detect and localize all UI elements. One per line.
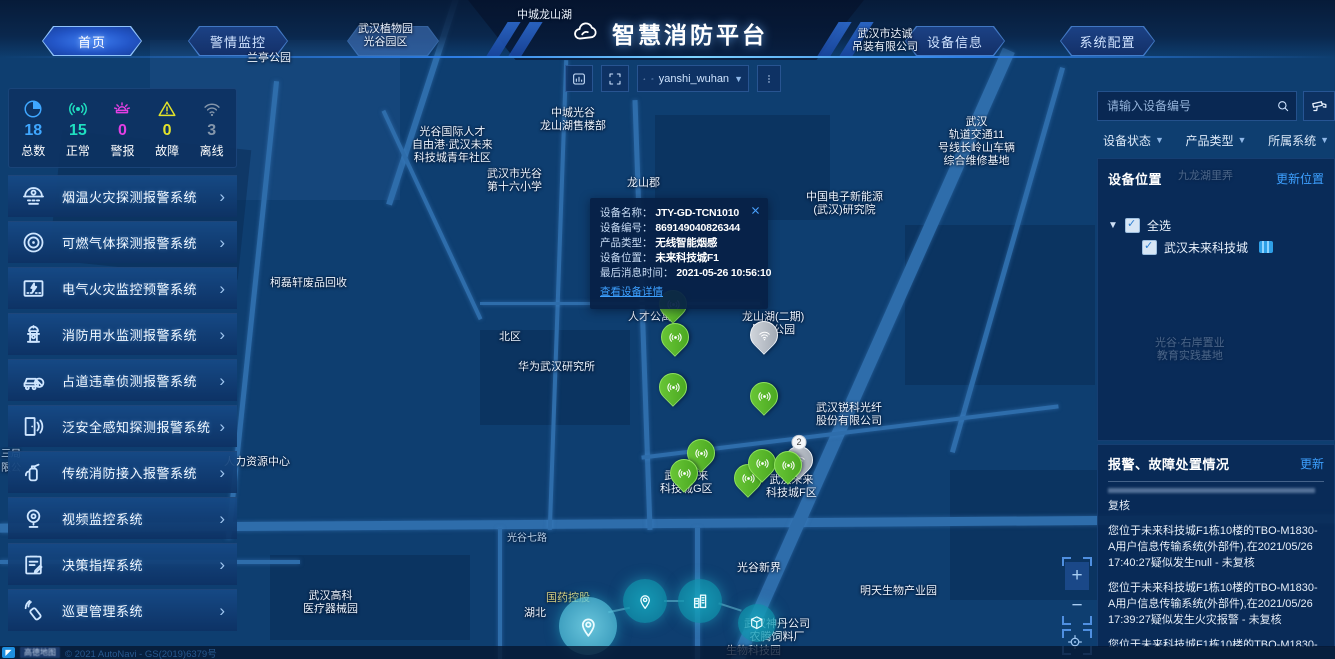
chevron-right-icon: › — [219, 602, 225, 619]
bar-chart-icon — [571, 71, 587, 87]
sidebar-menu-item[interactable]: 视频监控系统 › — [8, 497, 237, 539]
popup-field-value: 无线智能烟感 — [655, 237, 717, 249]
chevron-right-icon: › — [219, 510, 225, 527]
filter-sliders-icon — [651, 71, 654, 87]
building-badge-icon — [1259, 241, 1273, 253]
sidebar-menu-item[interactable]: 烟温火灾探测报警系统 › — [8, 175, 237, 217]
menu-item-label: 占道违章侦测报警系统 — [62, 371, 215, 390]
zoom-in-button[interactable]: + — [1065, 562, 1089, 590]
popup-field-label: 设备编号： — [600, 222, 653, 234]
menu-item-icon — [20, 413, 47, 440]
pin-glyph-icon — [781, 458, 796, 473]
smart-fire-platform: 中城龙山湖武汉植物园 光谷园区武汉市达诚 吊装有限公司兰亭公园中城光谷 龙山湖售… — [0, 0, 1335, 659]
stat-icon — [201, 98, 223, 120]
menu-item-icon — [20, 459, 47, 486]
chevron-right-icon: › — [219, 418, 225, 435]
sidebar-menu-item[interactable]: 可燃气体探测报警系统 › — [8, 221, 237, 263]
sidebar-menu-item[interactable]: 传统消防接入报警系统 › — [8, 451, 237, 493]
update-location-link[interactable]: 更新位置 — [1276, 170, 1324, 187]
location-panel-title: 设备位置 — [1108, 169, 1162, 188]
pin-glyph-icon — [755, 456, 770, 471]
menu-item-icon — [20, 505, 47, 532]
chevron-right-icon: › — [219, 234, 225, 251]
stat-item: 0 警报 — [100, 98, 145, 159]
stat-icon — [67, 98, 89, 120]
header-streaks-left — [497, 22, 532, 56]
map-label: 中国电子新能源 (武汉)研究院 — [806, 191, 883, 217]
popup-field-value: 2021-05-26 10:56:10 — [676, 267, 771, 279]
stat-item: 18 总数 — [11, 98, 56, 159]
popup-field-label: 设备位置： — [600, 252, 653, 264]
tree-expand-icon[interactable]: ▼ — [1108, 220, 1118, 231]
stat-value: 0 — [118, 122, 127, 140]
device-location-panel: 设备位置 更新位置 ▼ 全选 武汉未来科技城 — [1097, 158, 1335, 441]
poi-circle-marker[interactable] — [623, 579, 667, 623]
select-all-label: 全选 — [1147, 217, 1171, 234]
map-label: 武汉市光谷 第十六小学 — [487, 168, 542, 194]
circle-glyph-icon — [748, 614, 765, 631]
cctv-camera-icon — [1310, 97, 1329, 116]
select-all-checkbox[interactable] — [1125, 218, 1140, 233]
user-menu[interactable]: yanshi_wuhan ▼ — [637, 65, 749, 92]
circle-glyph-icon — [635, 591, 655, 611]
bell-icon — [643, 71, 646, 87]
alert-message[interactable]: 复核 — [1108, 488, 1324, 514]
map-label: 明天生物产业园 — [860, 585, 937, 598]
filter-system[interactable]: 所属系统▼ — [1268, 132, 1329, 149]
amap-badge: 高德地图 — [20, 647, 60, 658]
map-label: 武汉锐科光纤 股份有限公司 — [816, 402, 882, 428]
system-menu: 烟温火灾探测报警系统 › 可燃气体探测报警系统 › 电气火灾监控预警系统 › 消… — [8, 175, 237, 635]
map-label: 兰亭公园 — [247, 52, 291, 65]
popup-field-label: 最后消息时间： — [600, 267, 674, 279]
menu-item-icon — [20, 229, 47, 256]
sidebar-menu-item[interactable]: 消防用水监测报警系统 › — [8, 313, 237, 355]
sidebar-menu-item[interactable]: 电气火灾监控预警系统 › — [8, 267, 237, 309]
chevron-down-icon: ▼ — [1238, 135, 1247, 145]
menu-item-label: 烟温火灾探测报警系统 — [62, 187, 215, 206]
pin-glyph-icon — [677, 466, 692, 481]
menu-item-label: 传统消防接入报警系统 — [62, 463, 215, 482]
location-tree: ▼ 全选 武汉未来科技城 — [1108, 214, 1324, 258]
nav-device-info[interactable]: 设备信息 — [905, 26, 1005, 56]
menu-item-label: 泛安全感知探测报警系统 — [62, 417, 215, 436]
menu-item-label: 电气火灾监控预警系统 — [62, 279, 215, 298]
kebab-menu-icon — [763, 71, 775, 87]
stat-value: 15 — [69, 122, 87, 140]
stat-value: 0 — [163, 122, 172, 140]
map-label: 中城龙山湖 — [517, 9, 572, 22]
map-label: 武汉高科 医疗器械园 — [303, 590, 358, 616]
menu-item-label: 决策指挥系统 — [62, 555, 215, 574]
stat-label: 警报 — [110, 142, 134, 159]
stat-icon — [156, 98, 178, 120]
menu-item-icon — [20, 275, 47, 302]
nav-home[interactable]: 首页 — [42, 26, 142, 56]
chevron-right-icon: › — [219, 188, 225, 205]
node-checkbox[interactable] — [1142, 240, 1157, 255]
map-label: 湖北 — [524, 607, 546, 620]
map-label: 光谷新界 — [737, 562, 781, 575]
menu-item-label: 可燃气体探测报警系统 — [62, 233, 215, 252]
pin-glyph-icon — [694, 446, 709, 461]
popup-field: 产品类型： 无线智能烟感 — [600, 236, 758, 251]
stat-icon — [111, 98, 133, 120]
refresh-alerts-link[interactable]: 更新 — [1300, 455, 1324, 472]
popup-field: 设备名称： JTY-GD-TCN1010 — [600, 206, 758, 221]
stat-icon — [22, 98, 44, 120]
popup-field-value: JTY-GD-TCN1010 — [655, 207, 739, 219]
alerts-panel: 报警、故障处置情况 更新 复核您位于未来科技城F1栋10楼的TBO-M1830-… — [1097, 444, 1335, 648]
map-label: 北区 — [499, 331, 521, 344]
stat-label: 正常 — [66, 142, 90, 159]
zoom-control: + − — [1062, 557, 1092, 625]
alert-list[interactable]: 复核您位于未来科技城F1栋10楼的TBO-M1830-A用户信息传输系统(外部件… — [1108, 488, 1324, 648]
circle-glyph-icon — [575, 613, 602, 640]
divider — [1108, 481, 1324, 482]
camera-locate-button[interactable] — [1303, 91, 1335, 121]
device-info-popup: 设备名称： JTY-GD-TCN1010设备编号： 86914904082634… — [590, 198, 768, 309]
fullscreen-button[interactable] — [601, 65, 629, 92]
popup-field-label: 产品类型： — [600, 237, 653, 249]
circle-glyph-icon — [690, 591, 710, 611]
fullscreen-icon — [607, 71, 623, 87]
popup-field: 设备编号： 869149040826344 — [600, 221, 758, 236]
map-label: 中城光谷 龙山湖售楼部 — [540, 107, 606, 133]
menu-item-label: 巡更管理系统 — [62, 601, 215, 620]
map-attribution: ◤ 高德地图 © 2021 AutoNavi - GS(2019)6379号 — [0, 646, 1335, 659]
popup-field-value: 869149040826344 — [655, 222, 740, 234]
stat-item: 0 故障 — [145, 98, 190, 159]
map-label: 光谷·右岸置业 教育实践基地 — [1155, 337, 1225, 363]
map-label: 武汉市达诚 吊装有限公司 — [852, 28, 918, 54]
chevron-down-icon: ▼ — [1155, 135, 1164, 145]
poi-circle-marker[interactable] — [738, 604, 776, 642]
menu-item-label: 消防用水监测报警系统 — [62, 325, 215, 344]
stat-label: 总数 — [21, 142, 45, 159]
alert-message[interactable]: 您位于未来科技城F1栋10楼的TBO-M1830-A用户信息传输系统(外部件),… — [1108, 580, 1324, 628]
sidebar-menu-item[interactable]: 占道违章侦测报警系统 › — [8, 359, 237, 401]
map-label: 华为武汉研究所 — [518, 361, 595, 374]
chevron-right-icon: › — [219, 556, 225, 573]
chevron-right-icon: › — [219, 372, 225, 389]
stat-item: 3 离线 — [189, 98, 234, 159]
stat-label: 离线 — [200, 142, 224, 159]
zoom-out-button[interactable]: − — [1065, 594, 1089, 620]
sidebar-menu-item[interactable]: 决策指挥系统 › — [8, 543, 237, 585]
sidebar-menu-item[interactable]: 泛安全感知探测报警系统 › — [8, 405, 237, 447]
map-road — [498, 528, 502, 659]
sidebar-menu-item[interactable]: 巡更管理系统 › — [8, 589, 237, 631]
chart-button[interactable] — [565, 65, 593, 92]
menu-item-icon — [20, 183, 47, 210]
chevron-right-icon: › — [219, 280, 225, 297]
username: yanshi_wuhan — [659, 73, 729, 85]
popup-field: 最后消息时间： 2021-05-26 10:56:10 — [600, 266, 758, 281]
map-label: 龙山郡 — [627, 177, 660, 190]
alert-message[interactable]: 您位于未来科技城F1栋10楼的TBO-M1830-A用户信息传输系统(外部件),… — [1108, 523, 1324, 571]
chevron-down-icon: ▼ — [1320, 135, 1329, 145]
view-device-details-link[interactable]: 查看设备详情 — [600, 284, 663, 299]
map-label: 九龙湖里弄 — [1178, 170, 1233, 183]
poi-circle-marker[interactable] — [678, 579, 722, 623]
menu-item-label: 视频监控系统 — [62, 509, 215, 528]
stat-value: 3 — [207, 122, 216, 140]
chevron-right-icon: › — [219, 464, 225, 481]
device-pin-online[interactable] — [653, 367, 693, 407]
stat-item: 15 正常 — [56, 98, 101, 159]
alerts-panel-title: 报警、故障处置情况 — [1108, 454, 1230, 473]
filter-product-type[interactable]: 产品类型▼ — [1186, 132, 1247, 149]
pin-glyph-icon — [757, 328, 772, 343]
map-label: 光谷国际人才 自由港·武汉未来 科技城青年社区 — [412, 126, 493, 165]
map-label: 光谷七路 — [507, 532, 547, 545]
menu-item-icon — [20, 321, 47, 348]
more-options-button[interactable] — [757, 65, 781, 92]
close-icon[interactable] — [750, 203, 761, 221]
attribution-text: © 2021 AutoNavi - GS(2019)6379号 — [65, 646, 217, 659]
cluster-count-badge: 2 — [792, 435, 807, 450]
device-pin-online[interactable] — [744, 376, 784, 416]
map-label: 武汉 轨道交通11 号线长岭山车辆 综合维修基地 — [938, 116, 1015, 168]
filter-row: 设备状态▼ 产品类型▼ 所属系统▼ — [1097, 128, 1335, 152]
pin-glyph-icon — [666, 380, 681, 395]
menu-item-icon — [20, 597, 47, 624]
search-input[interactable] — [1097, 91, 1297, 121]
map-label: 武汉植物园 光谷园区 — [358, 23, 413, 49]
menu-item-icon — [20, 367, 47, 394]
map-block — [905, 225, 1095, 385]
device-stats-panel: 18 总数 15 正常 0 警报 0 故障 3 离线 — [8, 88, 237, 168]
map-label: 柯磊轩废品回收 — [270, 277, 347, 290]
map-block — [270, 555, 470, 640]
tree-node-label[interactable]: 武汉未来科技城 — [1164, 239, 1248, 256]
popup-field-value: 未来科技城F1 — [655, 252, 718, 264]
stat-value: 18 — [24, 122, 42, 140]
search-icon[interactable] — [1275, 98, 1291, 114]
menu-item-icon — [20, 551, 47, 578]
pin-glyph-icon — [757, 389, 772, 404]
stat-label: 故障 — [155, 142, 179, 159]
filter-device-status[interactable]: 设备状态▼ — [1103, 132, 1164, 149]
device-pin-online[interactable] — [655, 317, 695, 357]
device-search-row — [1097, 91, 1335, 121]
autonavi-logo-icon: ◤ — [2, 647, 15, 658]
pin-glyph-icon — [668, 330, 683, 345]
nav-system-config[interactable]: 系统配置 — [1060, 26, 1155, 56]
chevron-down-icon: ▼ — [734, 74, 743, 84]
popup-field-label: 设备名称： — [600, 207, 653, 219]
header-glow-line — [0, 56, 1335, 58]
popup-field: 设备位置： 未来科技城F1 — [600, 251, 758, 266]
chevron-right-icon: › — [219, 326, 225, 343]
